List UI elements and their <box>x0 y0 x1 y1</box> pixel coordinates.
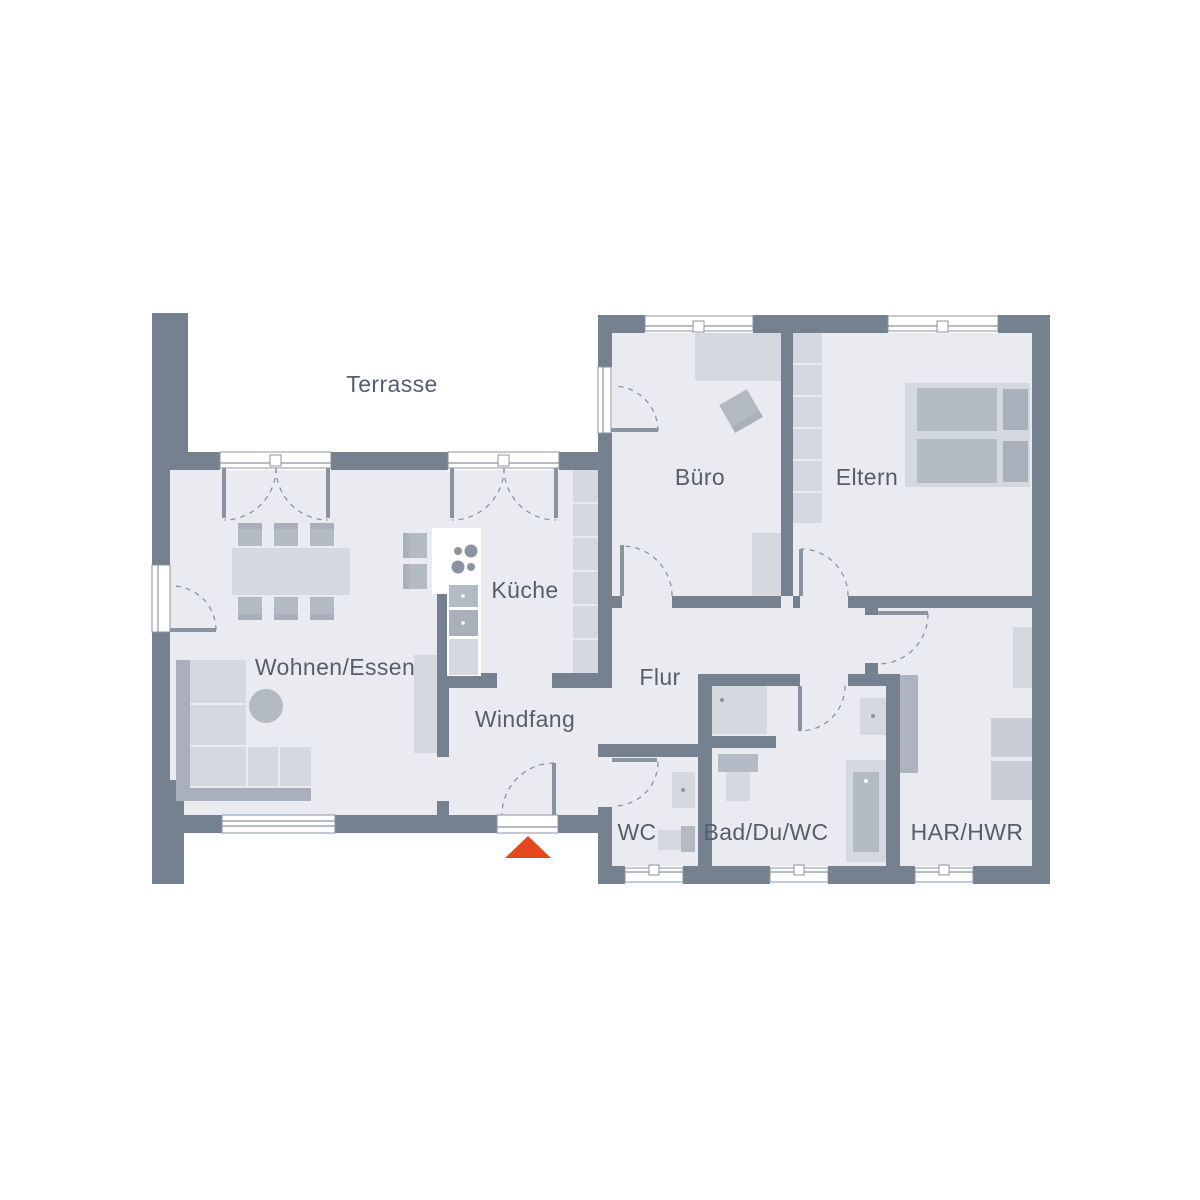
window-buero-north <box>645 316 753 332</box>
bed-pillow <box>1003 441 1028 482</box>
floor-plan-page: Terrasse Wohnen/Essen Küche Windfang Bür… <box>0 0 1200 1200</box>
passage-windfang-flur <box>598 688 612 744</box>
window-buero-terrace-door <box>598 367 611 433</box>
wall-top-left-a <box>170 452 220 470</box>
shower-drain <box>720 698 724 702</box>
wall-right <box>1032 315 1050 884</box>
bed-mattress <box>917 388 997 431</box>
oven-knob <box>461 621 465 625</box>
office-cabinet <box>752 533 781 596</box>
window-wc-south <box>625 865 683 882</box>
dining-chair-back <box>238 523 262 529</box>
kitchen-base-cabinet <box>449 639 478 675</box>
wc-toilet-bowl <box>658 830 681 850</box>
dining-table <box>232 548 350 595</box>
sofa-seat <box>280 747 311 786</box>
kitchen-cabinet-segment <box>573 572 598 604</box>
window-mullion <box>649 865 659 875</box>
wall-har-west-pier-top <box>865 596 878 615</box>
wc-sink-drain <box>681 788 685 792</box>
room-label-wohnen-essen: Wohnen/Essen <box>255 654 415 680</box>
wall-bottom-right-d <box>973 866 1050 884</box>
wall-top-left-b <box>331 452 448 470</box>
wall-spine-b <box>598 433 612 688</box>
bed-mattress <box>917 439 997 483</box>
window-mullion <box>939 865 949 875</box>
wall-left-upper <box>152 452 170 565</box>
window-terrace-door-b <box>448 452 559 468</box>
sofa-seat <box>248 747 278 786</box>
oven-knob <box>461 594 465 598</box>
toilet-tank <box>718 754 758 772</box>
sofa-seat-corner <box>190 747 246 786</box>
entrance-door-frame <box>497 815 558 833</box>
sink-drain <box>871 714 875 718</box>
wall-bottom-left-a <box>184 815 222 833</box>
wall-terrace-stub <box>152 313 188 452</box>
tall-cabinet-windfang-wall <box>414 655 437 753</box>
window-left-terrace-door <box>152 565 170 632</box>
room-label-wc: WC <box>617 819 656 845</box>
shower-tray <box>712 686 767 734</box>
window-terrace-door-a <box>220 452 331 468</box>
window-eltern-north <box>888 316 998 332</box>
kitchen-cabinet-segment <box>573 470 598 502</box>
wall-bottom-right-c <box>828 866 915 884</box>
wall-kueche-south-b <box>552 673 612 688</box>
passage-windfang-wc <box>598 757 612 807</box>
dining-chair-back <box>274 614 298 620</box>
window-har-south <box>915 865 973 882</box>
window-bad-south <box>770 865 828 882</box>
toilet-bowl <box>726 772 750 801</box>
kitchen-cabinet-segment <box>573 640 598 673</box>
washing-machine <box>991 718 1032 757</box>
room-label-eltern: Eltern <box>836 464 898 490</box>
room-label-flur: Flur <box>639 664 680 690</box>
room-label-buero: Büro <box>675 464 725 490</box>
wall-bottom-right-a <box>598 866 625 884</box>
wall-eltern-south-a <box>793 596 800 608</box>
kitchen-stool-back <box>403 564 409 589</box>
installation-chase <box>900 675 918 773</box>
kitchen-cabinet-segment <box>573 504 598 536</box>
window-mullion <box>937 321 948 332</box>
bathtub-drain <box>864 779 868 783</box>
wardrobe-segment <box>793 333 822 363</box>
wall-bottom-right-b <box>683 866 770 884</box>
kitchen-cabinet-segment <box>573 538 598 570</box>
coffee-table <box>249 689 283 723</box>
wall-buero-south-a <box>612 596 622 608</box>
window-mullion <box>498 455 509 466</box>
wardrobe-segment <box>793 493 822 523</box>
wardrobe-segment <box>793 461 822 491</box>
wall-har-west-pier-bottom <box>865 663 878 675</box>
room-label-har-hwr: HAR/HWR <box>911 819 1024 845</box>
wall-buero-eltern <box>781 333 793 596</box>
wall-wohnen-windfang-stub <box>437 801 449 815</box>
dining-chair-back <box>238 614 262 620</box>
cooktop-burner <box>454 547 462 555</box>
wall-wc-north <box>598 744 712 757</box>
wardrobe-segment <box>793 365 822 395</box>
sofa-back-left <box>176 660 190 801</box>
wall-left-lower <box>152 632 170 780</box>
sofa-seat <box>190 660 246 703</box>
room-label-windfang: Windfang <box>475 706 575 732</box>
dining-set <box>232 523 350 620</box>
wall-shower-stub <box>710 736 776 748</box>
cooktop-burner <box>452 561 465 574</box>
wardrobe-segment <box>793 397 822 427</box>
wc-toilet-tank <box>681 826 695 852</box>
wall-bottom-left-b <box>335 815 497 833</box>
window-mullion <box>270 455 281 466</box>
kitchen-cabinet-segment <box>573 606 598 638</box>
desk <box>695 333 781 381</box>
cooktop-burner <box>467 563 475 571</box>
wall-top-right-b <box>753 315 888 333</box>
dining-chair-back <box>310 614 334 620</box>
wall-top-right-a <box>598 315 645 333</box>
dryer <box>991 761 1032 800</box>
window-mullion <box>794 865 804 875</box>
wall-bad-north-a <box>698 674 800 686</box>
sofa-seat <box>190 705 246 745</box>
dining-chair-back <box>310 523 334 529</box>
floor-plan-canvas: Terrasse Wohnen/Essen Küche Windfang Bür… <box>0 0 1200 1200</box>
wardrobe-segment <box>793 429 822 459</box>
window-living-south <box>222 815 335 833</box>
wall-bad-har <box>886 674 900 866</box>
room-label-terrasse: Terrasse <box>346 371 437 397</box>
cooktop-burner <box>465 545 478 558</box>
room-label-kueche: Küche <box>491 577 558 603</box>
window-mullion <box>693 321 704 332</box>
dining-chair-back <box>274 523 298 529</box>
bed-pillow <box>1003 389 1028 430</box>
entrance-arrow <box>505 836 551 858</box>
utility-tall-cabinet <box>1013 627 1032 688</box>
sofa-back-bottom <box>176 788 311 801</box>
kitchen-stool-back <box>403 533 409 558</box>
bathtub-inner <box>853 772 879 852</box>
room-label-bad: Bad/Du/WC <box>703 819 828 845</box>
wall-buero-south-b <box>672 596 781 608</box>
